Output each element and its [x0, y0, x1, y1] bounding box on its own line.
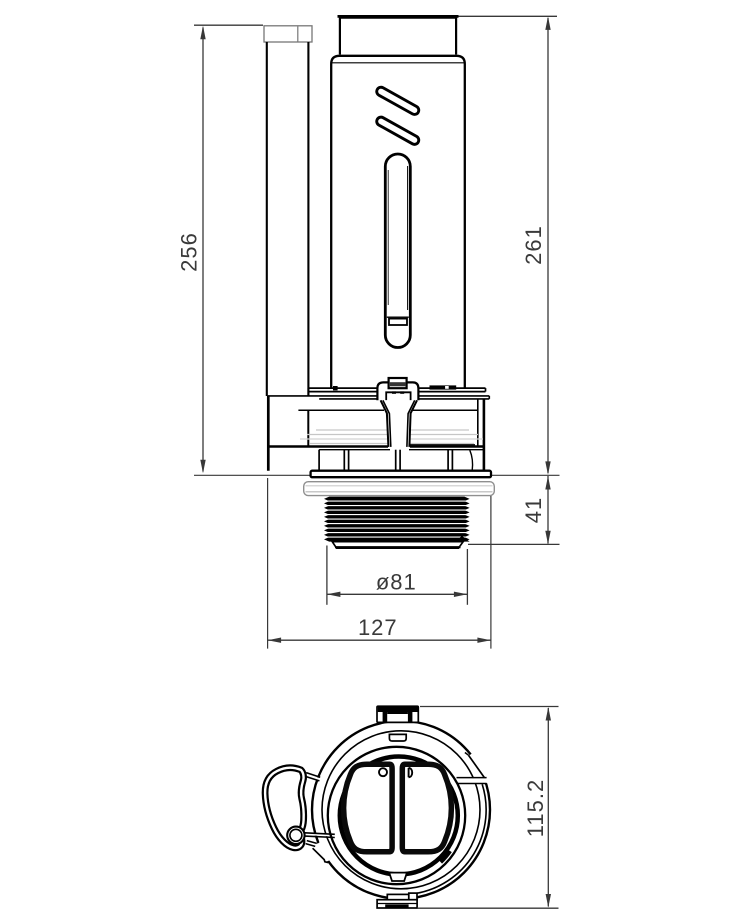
svg-text:256: 256 [177, 232, 202, 272]
svg-text:41: 41 [521, 497, 546, 523]
svg-text:ø81: ø81 [376, 570, 417, 595]
svg-text:127: 127 [358, 615, 398, 640]
svg-text:115.2: 115.2 [523, 779, 548, 837]
svg-text:261: 261 [521, 225, 546, 265]
